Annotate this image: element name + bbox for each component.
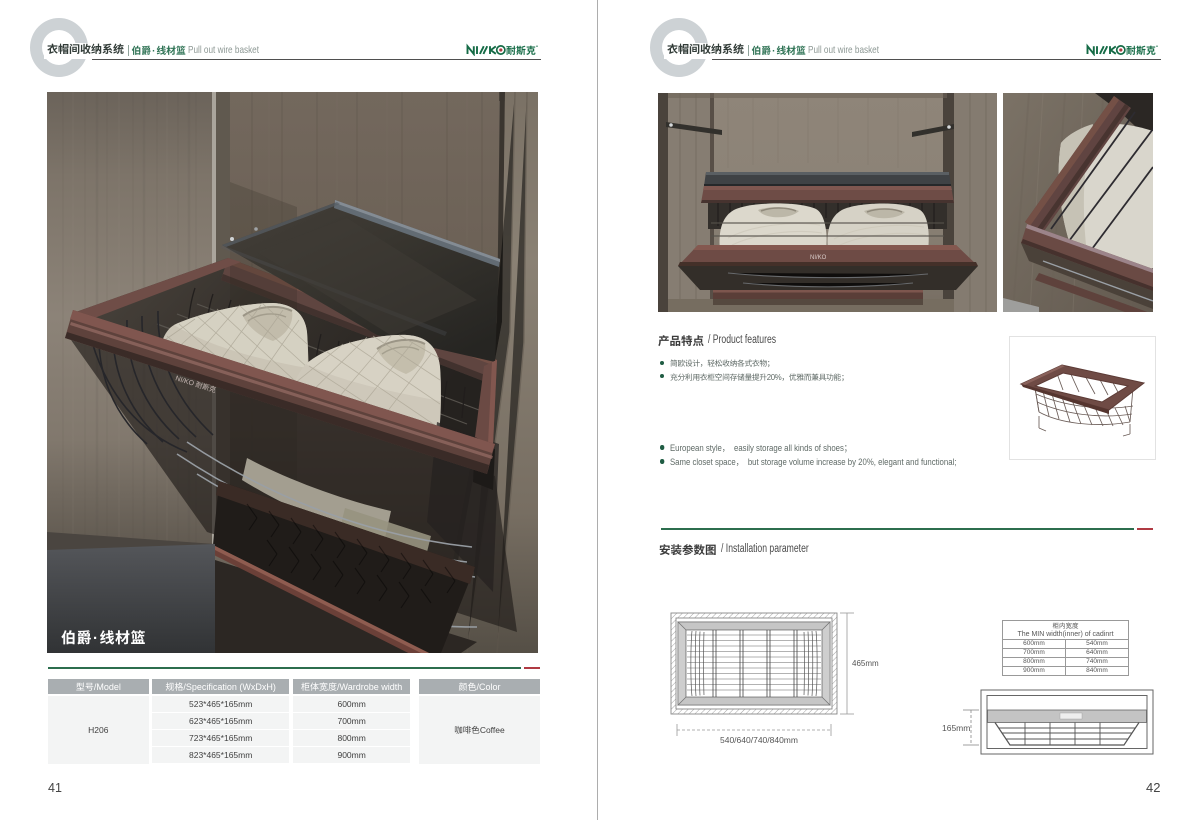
svg-text:耐斯克: 耐斯克 — [1126, 43, 1156, 56]
svg-text:耐斯克: 耐斯克 — [506, 43, 536, 56]
svg-text:165mm: 165mm — [942, 723, 970, 733]
svg-text:NI/KO: NI/KO — [810, 255, 827, 261]
svg-text:465mm: 465mm — [852, 659, 879, 668]
svg-text:540/640/740/840mm: 540/640/740/840mm — [720, 735, 798, 745]
